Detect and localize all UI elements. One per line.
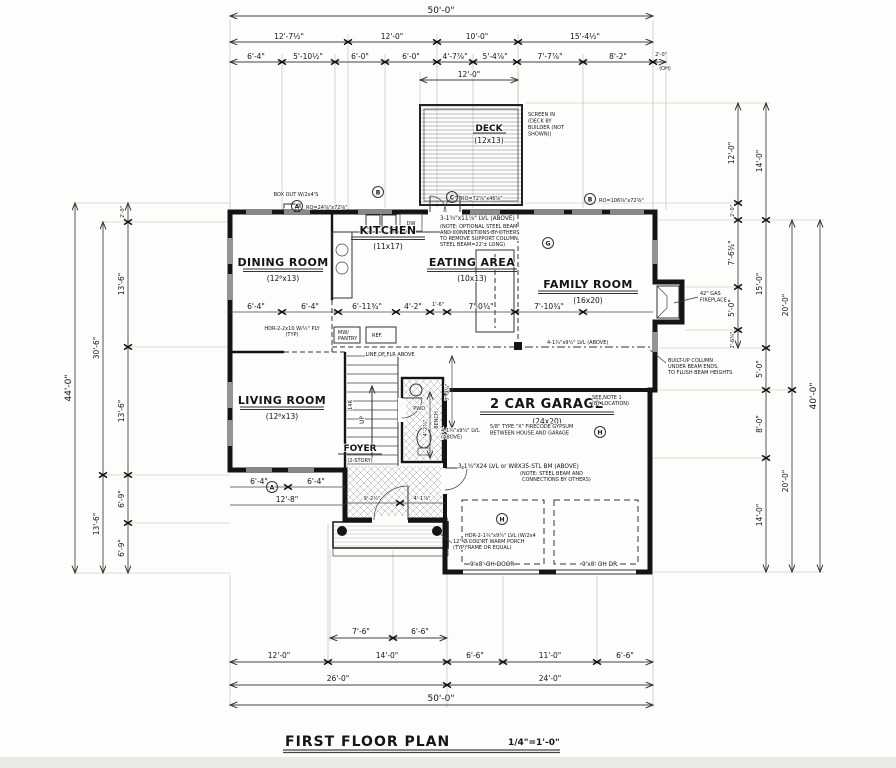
room-size-living: (12⁶x13) xyxy=(266,412,298,421)
room-label-garage: 2 CAR GARAGE xyxy=(490,397,604,412)
dim-label: 6'-11¾" xyxy=(352,302,382,311)
svg-text:FIREPLACE: FIREPLACE xyxy=(700,298,727,304)
dim-label: 12'-0" xyxy=(381,32,404,41)
dim-label: 13'-6" xyxy=(92,513,101,536)
page-edge-strip xyxy=(0,757,896,768)
svg-text:(ABOVE): (ABOVE) xyxy=(441,435,462,441)
fridge-label: REF. xyxy=(372,333,383,339)
dim-label: 7'-0¾" xyxy=(468,302,493,311)
dim-label: 12'-0" xyxy=(268,651,291,660)
room-label-family: FAMILY ROOM xyxy=(543,278,632,291)
window-tag-b-ro: RO=106⅝"x72⅝" xyxy=(599,198,644,204)
stair-riser-label: 14R xyxy=(348,400,354,410)
sheet-scale: 1/4"=1'-0" xyxy=(508,738,560,748)
svg-text:CONNECTIONS BY OTHERS): CONNECTIONS BY OTHERS) xyxy=(522,477,591,483)
dim-label: 26'-0" xyxy=(327,674,350,683)
dim-label: 6'-6" xyxy=(616,651,634,660)
dim-label: 15'-4½" xyxy=(570,32,600,41)
dim-label: 6'-9" xyxy=(117,490,126,508)
dim-label: 4'-2" xyxy=(404,302,422,311)
dim-label: 4'-7⅞" xyxy=(442,52,467,61)
box-out-note: BOX OUT W/2x4'S xyxy=(274,192,319,198)
dim-label: 7'-6" xyxy=(352,627,370,636)
oh-door-left xyxy=(463,568,539,576)
svg-text:STEEL BEAM=22'± LONG): STEEL BEAM=22'± LONG) xyxy=(440,242,505,248)
svg-text:SHOWN)): SHOWN)) xyxy=(528,132,552,138)
room-label-kitchen: KITCHEN xyxy=(360,224,417,237)
dim-label: 12'-7½" xyxy=(274,32,304,41)
svg-text:(TYP): (TYP) xyxy=(285,332,298,338)
dim-label: 12'-0" xyxy=(727,142,736,165)
dim-label: 20'-0" xyxy=(781,294,790,317)
dim-label: 2'-0" xyxy=(730,205,736,217)
svg-text:BUILDER (NOT: BUILDER (NOT xyxy=(528,125,565,131)
dim-label: 6'-6" xyxy=(411,627,429,636)
svg-text:B: B xyxy=(588,197,593,204)
beam-note: 3-1¾"x11⅞" LVL (ABOVE) xyxy=(440,216,515,222)
dim-label: 4'-2¾" xyxy=(423,420,429,437)
lvl-garage-note: 4-1¾"x9¼" LVL xyxy=(441,428,480,434)
room-size-kitchen: (11x17) xyxy=(373,242,402,251)
dim-label: 7'-9¾" xyxy=(445,384,451,401)
dim-label: 14'-0" xyxy=(755,504,764,527)
gypsum-note: 5/8" TYPE "X" FIRECODE GYPSUM xyxy=(490,424,573,430)
oh-door-right xyxy=(556,568,636,576)
drawing-sheet: 50'-0" 12'-7½" 12'-0" 10'-0" 15'-4½" 6'-… xyxy=(0,0,896,768)
room-size-deck: (12x13) xyxy=(474,136,503,145)
dim-label: 2'-0" xyxy=(655,52,667,58)
dim-label: 8'-2" xyxy=(609,52,627,61)
room-label-eating: EATING AREA xyxy=(429,256,515,269)
window-tag-c-ro: RO=72⅝"x46⅝" xyxy=(461,196,503,202)
dim-label: 6'-4" xyxy=(247,52,265,61)
room-size-eating: (10x13) xyxy=(457,274,486,283)
dim-label: 13'-6" xyxy=(117,273,126,296)
dim-label: 6'-0" xyxy=(351,52,369,61)
dim-label: 4'-1⅞" xyxy=(414,496,431,502)
room-label-dining: DINING ROOM xyxy=(237,256,328,269)
dim-label: 20'-0" xyxy=(781,470,790,493)
dim-label: 8'-0" xyxy=(755,415,764,433)
room-size-foyer: (2-STORY) xyxy=(347,458,372,464)
dim-label: 6'-9" xyxy=(117,539,126,557)
dim-label-oh: (OH) xyxy=(659,66,671,72)
svg-text:C: C xyxy=(450,195,455,202)
svg-text:TO FLUSH BEAM HEIGHTS: TO FLUSH BEAM HEIGHTS xyxy=(667,370,732,376)
dim-label: 5'-0" xyxy=(727,299,736,317)
dim-label: 14'-0" xyxy=(755,150,764,173)
dim-label: 12'-8" xyxy=(276,495,299,504)
line-above-note: LINE OF FLR ABOVE xyxy=(365,352,414,358)
svg-text:B: B xyxy=(376,190,381,197)
hdr-typ-note: HDR-2-2x10 W/½" PLY xyxy=(264,325,320,332)
dim-label: 14'-0" xyxy=(376,651,399,660)
dim-left-overall: 44'-0" xyxy=(64,374,74,401)
dim-label: 7'-10¾" xyxy=(534,302,564,311)
oh-door-left-label: 9'x8' OH DOOR xyxy=(470,562,514,568)
steel-note: 3-1¾"X24 LVL or W8X35-STL BM (ABOVE) xyxy=(458,464,579,470)
svg-text:A: A xyxy=(295,204,300,211)
bench-label: BENCH xyxy=(434,411,440,429)
sheet-title: FIRST FLOOR PLAN xyxy=(285,734,450,750)
floor-plan-drawing: 50'-0" 12'-7½" 12'-0" 10'-0" 15'-4½" 6'-… xyxy=(0,0,896,768)
dim-label: 13'-6" xyxy=(117,400,126,423)
svg-text:H: H xyxy=(499,517,504,524)
deck: DECK (12x13) xyxy=(420,105,522,205)
dim-label: 5'-10½" xyxy=(293,52,323,61)
dim-label: 24'-0" xyxy=(539,674,562,683)
stair-up-label: UP xyxy=(360,416,366,424)
dim-label: 11'-0" xyxy=(539,651,562,660)
dim-label: 15'-0" xyxy=(755,273,764,296)
lvl-family-note: 4-1¾"x9¼" LVL (ABOVE) xyxy=(547,340,608,346)
dim-label: 30'-6" xyxy=(92,337,101,360)
svg-text:BETWEEN HOUSE AND GARAGE: BETWEEN HOUSE AND GARAGE xyxy=(490,431,569,437)
dim-label: 2'-0" xyxy=(120,206,126,218)
dim-label: 7'-7⅞" xyxy=(537,52,562,61)
dim-right-overall: 40'-0" xyxy=(809,382,819,409)
dim-label: 6'-6" xyxy=(466,651,484,660)
svg-text:G: G xyxy=(546,241,551,248)
svg-text:A: A xyxy=(270,485,275,492)
dim-label: 5'-0" xyxy=(755,360,764,378)
col-typ-note: 12" Ø COL. xyxy=(453,538,481,545)
dim-label: 6'-4" xyxy=(250,477,268,486)
dim-label: 6'-4" xyxy=(307,477,325,486)
dim-label: 6'-4" xyxy=(247,302,265,311)
room-size-dining: (12⁶x13) xyxy=(267,274,299,283)
dim-label: 10'-0" xyxy=(466,32,489,41)
dim-deck-width: 12'-0" xyxy=(458,70,481,79)
svg-text:(TYP): (TYP) xyxy=(453,545,466,551)
svg-text:(BY LOCATION): (BY LOCATION) xyxy=(592,401,629,407)
svg-text:H: H xyxy=(597,430,602,437)
svg-text:FRAME OR EQUAL): FRAME OR EQUAL) xyxy=(465,545,512,551)
dim-label: 7'-6¾" xyxy=(727,240,736,265)
dim-label: 5'-4⅞" xyxy=(482,52,507,61)
deck-note: SCREEN IN xyxy=(528,112,555,118)
room-size-family: (16x20) xyxy=(573,296,602,305)
dim-label: 9'-2½" xyxy=(364,495,381,502)
room-label-living: LIVING ROOM xyxy=(238,394,326,407)
dim-label: 6'-4" xyxy=(301,302,319,311)
dim-label: 6'-0" xyxy=(402,52,420,61)
oh-door-right-label: 9'x8' OH DR. xyxy=(582,562,619,568)
window-tag-a-ro: RO=24⅝"x72⅝" xyxy=(306,205,348,211)
pantry-label: PANTRY xyxy=(338,336,358,342)
room-label-foyer: FOYER xyxy=(343,444,376,454)
svg-text:(DECK BY: (DECK BY xyxy=(528,119,552,125)
dim-top-overall: 50'-0" xyxy=(427,6,454,16)
dim-label: 1'-6" xyxy=(432,302,444,308)
fireplace-note: 42" GAS xyxy=(700,291,721,297)
dim-bottom-overall: 50'-0" xyxy=(427,694,454,704)
dim-label: 2'-6¾" xyxy=(730,332,736,349)
powder-label: PWD. xyxy=(413,406,427,412)
